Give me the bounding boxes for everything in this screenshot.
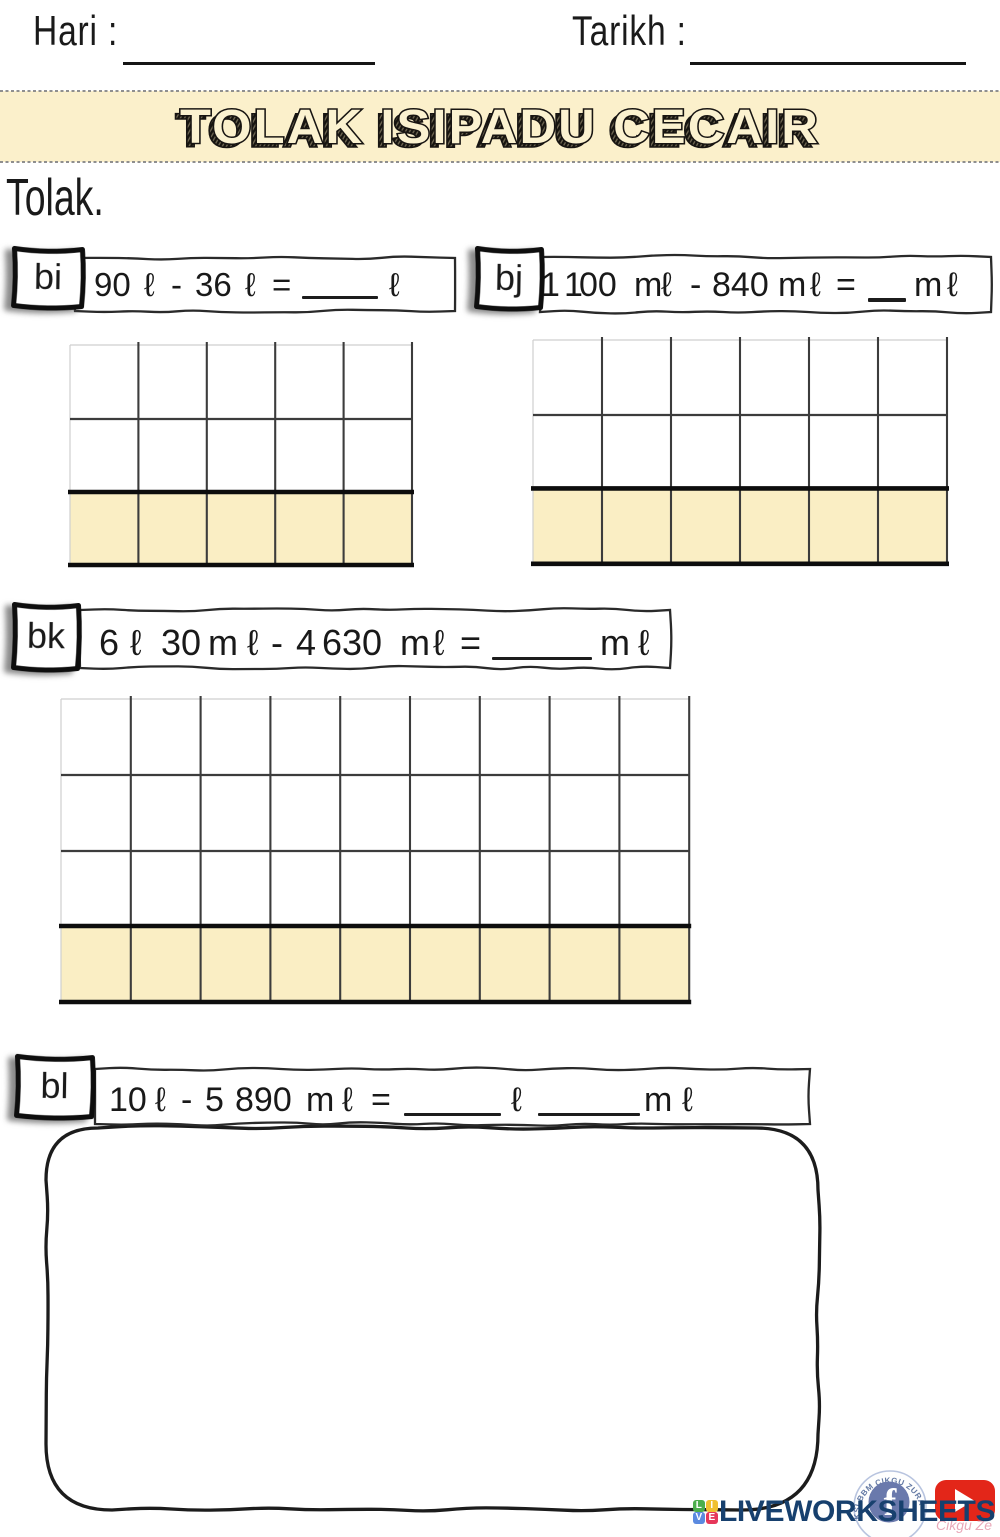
svg-text:bl: bl bbox=[40, 1065, 69, 1106]
svg-text:TOLAK ISIPADU CECAIR: TOLAK ISIPADU CECAIR bbox=[180, 101, 820, 154]
svg-text:bi: bi bbox=[34, 256, 63, 297]
svg-text:bj: bj bbox=[495, 257, 524, 298]
svg-text:bk: bk bbox=[27, 615, 67, 657]
